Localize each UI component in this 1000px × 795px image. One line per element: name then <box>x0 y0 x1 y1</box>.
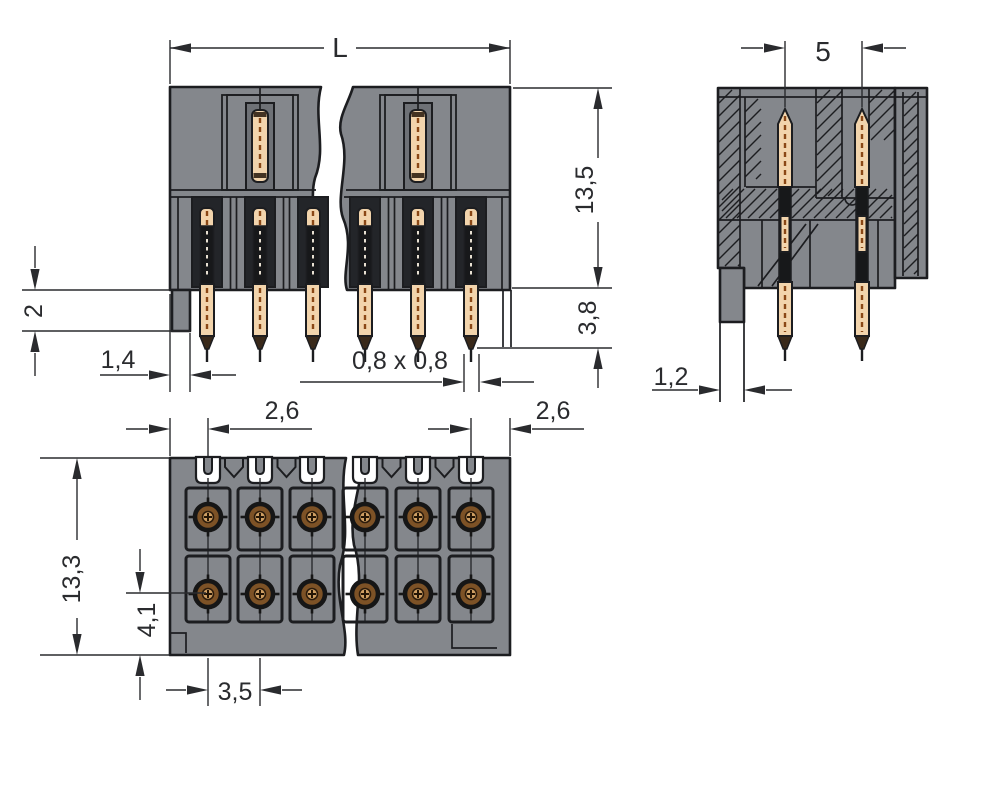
front-row-pin <box>245 197 275 362</box>
dim-total-length: L <box>170 32 510 84</box>
dim-label-13-3: 13,3 <box>58 555 86 604</box>
dim-label-2-6-left: 2,6 <box>265 397 300 425</box>
dim-label-3-8: 3,8 <box>574 301 602 336</box>
technical-drawing-page: L 13,5 3,8 2 <box>0 0 1000 795</box>
side-view <box>718 41 927 402</box>
dim-row-spacing: 5 <box>741 36 906 67</box>
dim-label-4-1: 4,1 <box>133 603 161 638</box>
dim-label-2: 2 <box>20 304 48 318</box>
dim-label-1-2: 1,2 <box>654 363 689 391</box>
front-peg-left <box>172 290 190 331</box>
front-row-pin <box>298 197 328 362</box>
dim-peg-width: 1,2 <box>652 363 792 395</box>
dim-label-5: 5 <box>815 36 831 67</box>
dim-label-0-8: 0,8 x 0,8 <box>352 347 448 375</box>
dim-pin-cross-section: 0,8 x 0,8 <box>300 347 534 392</box>
dim-label-L: L <box>332 32 348 63</box>
front-row-pin <box>403 197 433 362</box>
dim-edge-to-pin-left: 2,6 <box>126 397 312 456</box>
dim-label-3-5: 3,5 <box>218 678 253 706</box>
front-row-pin <box>456 197 486 362</box>
dim-edge-to-pin-right: 2,6 <box>428 397 584 456</box>
front-row-pin <box>350 197 380 362</box>
dim-label-13-5: 13,5 <box>571 166 599 215</box>
front-row-pin <box>192 197 222 362</box>
dim-label-1-4: 1,4 <box>101 346 136 374</box>
dim-label-2-6-right: 2,6 <box>536 397 571 425</box>
dim-edge-offset: 1,4 <box>100 294 236 392</box>
side-flange <box>895 88 927 278</box>
bottom-view <box>170 457 510 655</box>
side-peg <box>720 268 744 322</box>
front-view <box>170 87 511 362</box>
connector-dimension-drawing: L 13,5 3,8 2 <box>0 0 1000 795</box>
dim-pin-pitch: 3,5 <box>166 658 302 706</box>
